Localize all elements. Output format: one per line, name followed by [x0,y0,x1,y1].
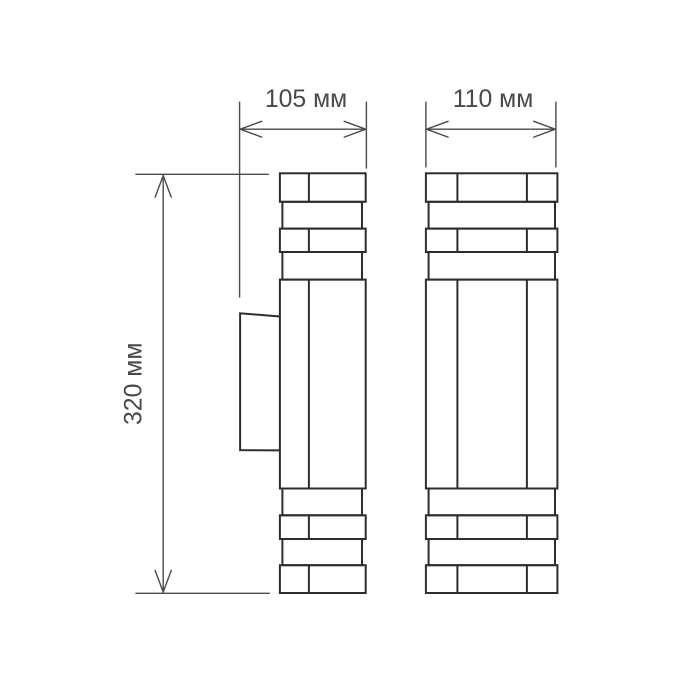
svg-text:105 мм: 105 мм [265,86,347,113]
svg-text:320 мм: 320 мм [121,343,148,425]
svg-text:110 мм: 110 мм [453,86,534,113]
